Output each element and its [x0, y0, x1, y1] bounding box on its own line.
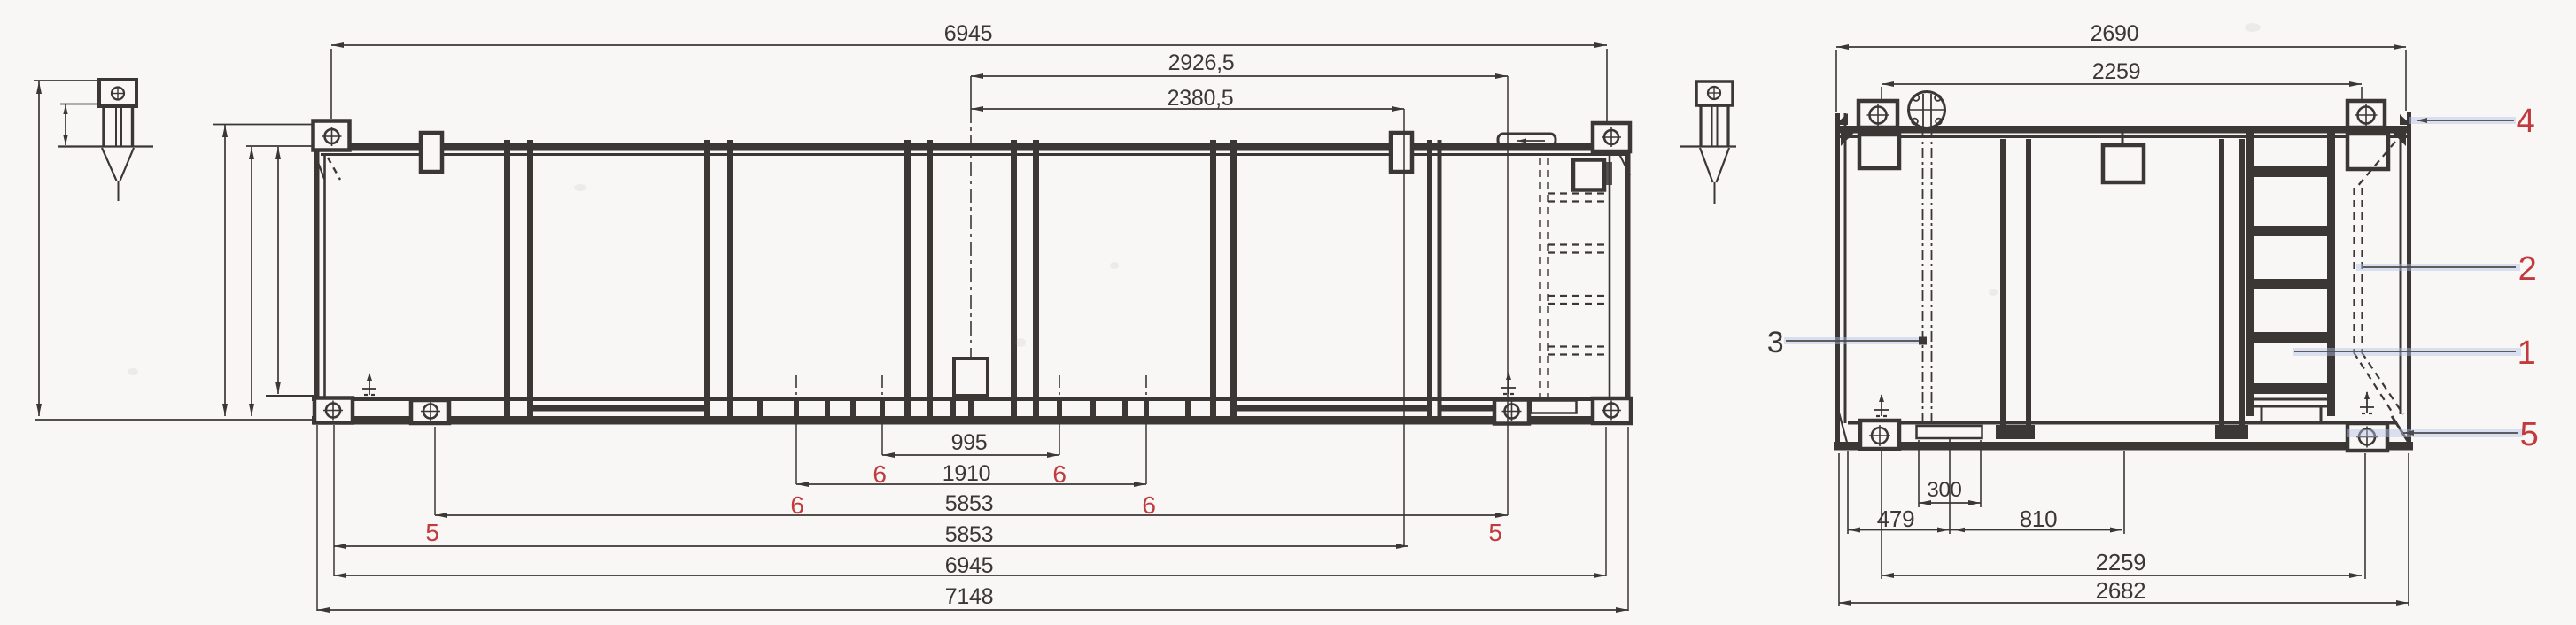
svg-text:2: 2: [2518, 251, 2537, 288]
svg-text:4: 4: [2517, 103, 2535, 140]
svg-text:2682: 2682: [2096, 577, 2146, 604]
svg-text:7148: 7148: [945, 584, 993, 609]
svg-text:810: 810: [2020, 505, 2057, 532]
svg-text:2690: 2690: [2091, 21, 2138, 46]
svg-text:2380,5: 2380,5: [1168, 86, 1234, 111]
svg-text:2926,5: 2926,5: [1168, 50, 1235, 75]
svg-text:5: 5: [1488, 519, 1501, 546]
svg-text:6945: 6945: [945, 553, 993, 578]
svg-text:5853: 5853: [945, 522, 993, 547]
svg-text:5: 5: [425, 519, 438, 546]
svg-text:995: 995: [951, 430, 988, 455]
svg-text:2259: 2259: [2092, 59, 2140, 84]
svg-text:6: 6: [873, 460, 886, 488]
svg-text:6: 6: [1052, 460, 1066, 488]
svg-text:300: 300: [1927, 478, 1961, 502]
svg-text:5853: 5853: [945, 491, 993, 516]
svg-text:6945: 6945: [944, 21, 992, 46]
svg-text:479: 479: [1877, 505, 1914, 532]
svg-text:1: 1: [2518, 335, 2536, 372]
svg-text:2259: 2259: [2096, 549, 2146, 575]
svg-text:3: 3: [1767, 326, 1784, 359]
svg-text:6: 6: [790, 491, 803, 519]
svg-text:1910: 1910: [943, 461, 990, 486]
svg-text:5: 5: [2520, 416, 2539, 453]
svg-text:6: 6: [1142, 491, 1155, 519]
